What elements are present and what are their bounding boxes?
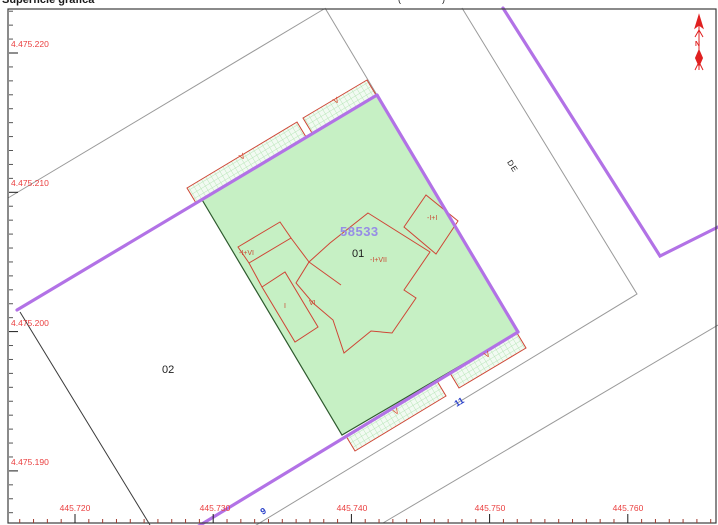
subparcel-01-label: 01 <box>352 249 364 260</box>
map-geometry <box>0 0 718 525</box>
boundary-east-block <box>503 8 718 256</box>
y-axis-label: 4.475.200 <box>11 319 49 328</box>
subparcel-02-label: 02 <box>162 365 174 376</box>
x-axis-label: 445.720 <box>51 504 99 513</box>
x-axis-label: 445.760 <box>604 504 652 513</box>
y-axis-label: 4.475.220 <box>11 40 49 49</box>
cadastral-map-page: Superficie gráfica (···· ··· ·····) · ··… <box>0 0 718 525</box>
parcel02-inner-boundary <box>20 312 150 525</box>
parcel-number-label: 58533 <box>340 225 379 238</box>
x-axis-label: 445.740 <box>328 504 376 513</box>
construction-label-main: -I+VII <box>370 257 387 264</box>
north-letter: N <box>695 41 700 48</box>
x-axis-label: 445.750 <box>466 504 514 513</box>
y-axis-label: 4.475.190 <box>11 458 49 467</box>
construction-label-I: I <box>284 303 286 310</box>
street-left-edge-top <box>325 8 377 95</box>
construction-label-upper-right: -I+I <box>427 215 437 222</box>
construction-label-left-strip: -I+VI <box>239 250 254 257</box>
parcel-58533-area[interactable] <box>201 95 518 435</box>
construction-label-VI: VI <box>309 300 316 307</box>
map-canvas[interactable] <box>0 0 718 525</box>
y-axis-label: 4.475.210 <box>11 179 49 188</box>
x-axis-label: 445.730 <box>191 504 239 513</box>
